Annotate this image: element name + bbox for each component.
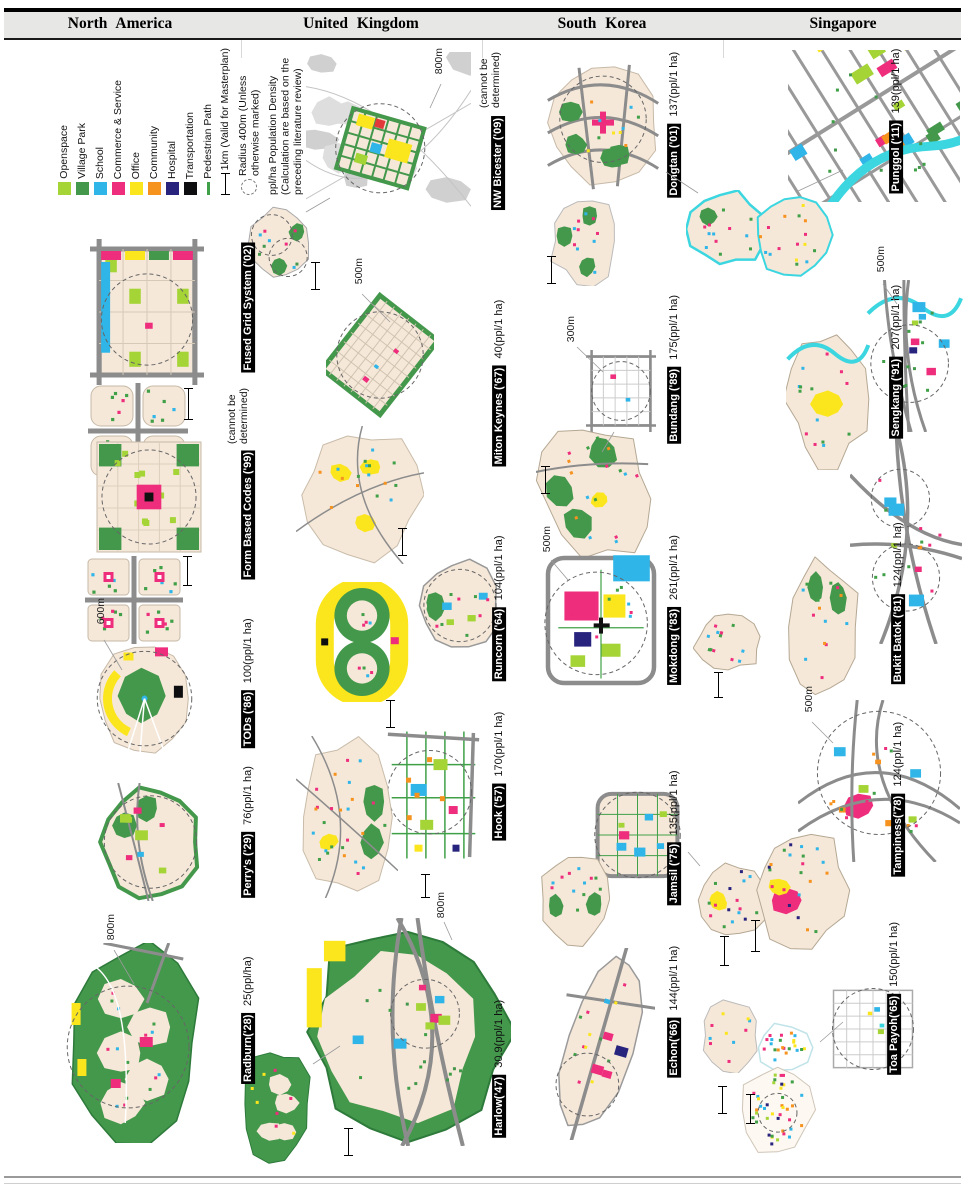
map-mokdong-small <box>693 610 763 674</box>
map-nw-bicester-small <box>246 203 314 283</box>
map-tods <box>92 632 197 760</box>
scale-label-mokdong: 500m <box>542 526 554 552</box>
legend-label: Pedestrian Path <box>202 104 214 179</box>
scalebar-1km <box>751 920 760 952</box>
map-tampiness-small <box>750 826 852 954</box>
entry-density: 175(ppl/1 ha) <box>668 295 680 360</box>
map-punggol-large <box>788 50 960 202</box>
entry-name: Hook ('57) <box>492 784 506 841</box>
map-punggol-small <box>750 190 834 280</box>
entry-name: Miton Keynes ('67) <box>492 366 506 467</box>
legend-label: Community <box>148 126 160 179</box>
legend-color-swatch <box>130 182 143 195</box>
entry-name: Bukit Batok ('81) <box>891 594 905 684</box>
entry-name: Tampiness('78) <box>891 794 905 877</box>
entry-label-tampiness: Tampiness('78)124(ppl/1 ha) <box>892 722 904 877</box>
legend-label: Office <box>130 152 142 179</box>
legend-item-office: Office <box>130 152 143 195</box>
entry-name: TODs ('86) <box>241 690 255 748</box>
entry-label-nw-bicester: NW Bicester ('09) <box>492 116 504 210</box>
entry-label-miton-keynes: Miton Keynes ('67)40(ppl/1 ha) <box>493 300 505 466</box>
header-united-kingdom: United Kingdom <box>303 15 419 33</box>
radius-circle-icon <box>241 179 257 195</box>
entry-label-harlow: Harlow('47)30.9(ppl/1 ha) <box>493 1000 505 1138</box>
legend-item-hospital: Hospital <box>166 141 179 195</box>
entry-name: Dongtan ('01) <box>667 124 681 198</box>
map-toa-payoh-small <box>738 1018 826 1166</box>
legend-item-commerce-service: Commerce & Service <box>112 80 125 195</box>
scale-label-tampiness: 500m <box>804 686 816 712</box>
scale-label-nw-bicester: 800m <box>434 48 446 74</box>
legend-label: Hospital <box>166 141 178 179</box>
scale-label-bundang: 300m <box>566 316 578 342</box>
map-nw-bicester-large <box>306 52 471 227</box>
legend-label: Village Park <box>76 123 88 179</box>
entry-name: Toa Payoh('65) <box>887 994 901 1075</box>
legend-item-village-park: Village Park <box>76 123 89 195</box>
legend-item-1km-valid-for-masterplan: 1km (Valid for Masterplan) <box>219 48 231 195</box>
entry-density: 124(ppl/1 ha) <box>892 722 904 787</box>
legend-color-swatch <box>184 182 197 195</box>
map-radburn <box>60 943 205 1143</box>
entry-label-punggol: Punggol ('11)139(ppl/1 ha) <box>890 49 902 193</box>
scale-label-radburn: 800m <box>106 914 118 940</box>
entry-name: Sengkang ('91) <box>889 357 903 439</box>
entry-density: 76(ppl/1 ha) <box>242 766 254 825</box>
scalebar-1km <box>183 556 192 586</box>
entry-density: 40(ppl/1 ha) <box>493 300 505 359</box>
entry-label-tods: TODs ('86)100(ppl/1 ha) <box>242 618 254 748</box>
entry-density: 144(ppl/1 ha) <box>668 946 680 1011</box>
scale-label-harlow: 800m <box>436 892 448 918</box>
legend-label: Openspace <box>58 125 70 179</box>
map-miton-keynes-large <box>326 286 434 424</box>
map-hook-large <box>386 726 481 864</box>
map-toa-payoh-large <box>826 983 920 1075</box>
map-dongtan-large <box>543 56 663 204</box>
entry-name: NW Bicester ('09) <box>491 116 505 210</box>
map-form-based-codes-large <box>93 438 205 556</box>
entry-label-echon: Echon('66)144(ppl/1 ha) <box>668 946 680 1078</box>
scale-label-sengkang: 500m <box>876 246 888 272</box>
map-hook-small <box>296 736 398 898</box>
entry-label-dongtan: Dongtan ('01)137(ppl/1 ha) <box>668 52 680 198</box>
scalebar-1km <box>344 1128 353 1156</box>
legend-color-swatch <box>94 182 107 195</box>
legend-color-swatch <box>58 182 71 195</box>
map-dongtan-mini <box>548 196 622 286</box>
legend: OpenspaceVillage ParkSchoolCommerce & Se… <box>58 44 304 195</box>
map-bukit-batok-small <box>786 553 860 701</box>
scalebar-icon <box>221 173 230 195</box>
legend-label: Transportation <box>184 112 196 179</box>
entry-label-hook: Hook ('57)170(ppl/1 ha) <box>493 712 505 841</box>
header-south-korea: South Korea <box>558 15 647 33</box>
map-fused-grid-large <box>90 237 204 387</box>
map-bundang-large <box>536 416 654 564</box>
scalebar-1km <box>746 1094 755 1124</box>
entry-label-radburn: Radburn('28)25(ppl/ha) <box>242 956 254 1084</box>
entry-name: Bundang ('89) <box>667 367 681 444</box>
figure-page: North America United Kingdom South Korea… <box>0 0 965 1197</box>
entry-density: 170(ppl/1 ha) <box>493 712 505 777</box>
entry-name: Punggol ('11) <box>889 121 903 194</box>
map-mokdong-large <box>540 548 662 693</box>
entry-name: Perry's ('29) <box>241 832 255 898</box>
header-north-america: North America <box>68 15 172 33</box>
entry-density: 135(ppl/1 ha) <box>668 770 680 835</box>
map-echon-large <box>543 948 655 1140</box>
map-sengkang-large <box>866 280 963 432</box>
legend-item-community: Community <box>148 126 161 195</box>
entry-density: 104(ppl/1 ha) <box>493 535 505 600</box>
entry-note-nw-bicester: (cannot be determined) <box>478 44 502 108</box>
entry-density: 25(ppl/ha) <box>242 956 254 1006</box>
scalebar-1km <box>386 700 395 728</box>
entry-name: Jamsil ('75) <box>667 842 681 905</box>
entry-name: Radburn('28) <box>241 1013 255 1084</box>
entry-label-runcorn: Runcorn ('64)104(ppl/1 ha) <box>493 535 505 681</box>
scalebar-1km <box>714 672 723 698</box>
scalebar-1km <box>718 1086 727 1114</box>
legend-color-swatch <box>148 182 161 195</box>
map-bukit-batok-large <box>850 436 962 644</box>
legend-label: Commerce & Service <box>112 80 124 179</box>
entry-name: Fused Grid System ('02) <box>241 243 255 373</box>
entry-label-mokdong: Mokdong ('83)261(ppl/1 ha) <box>668 535 680 685</box>
entry-density: 124(ppl/1 ha) <box>892 522 904 587</box>
scalebar-1km <box>421 874 430 898</box>
bottom-rule <box>4 1176 961 1178</box>
scalebar-1km <box>311 262 320 290</box>
entry-name: Mokdong ('83) <box>667 607 681 685</box>
entry-label-fused-grid: Fused Grid System ('02) <box>242 243 254 373</box>
map-harlow-large <box>296 918 511 1146</box>
entry-label-bukit-batok: Bukit Batok ('81)124(ppl/1 ha) <box>892 522 904 684</box>
scalebar-1km <box>720 936 729 966</box>
legend-label: 1km (Valid for Masterplan) <box>219 48 231 170</box>
legend-item-transportation: Transportation <box>184 112 197 195</box>
entry-density: 207(ppl/1 ha) <box>890 285 902 350</box>
entry-density: 139(ppl/1 ha) <box>890 49 902 114</box>
entry-label-sengkang: Sengkang ('91)207(ppl/1 ha) <box>890 285 902 439</box>
legend-item-radius-400m-unless-other: Radius 400m (Unless otherwise marked) <box>237 44 262 195</box>
legend-label: Radius 400m (Unless otherwise marked) <box>237 44 262 176</box>
entry-label-perrys: Perry's ('29)76(ppl/1 ha) <box>242 766 254 898</box>
legend-item-school: School <box>94 147 107 195</box>
entry-note-form-based-codes: (cannot be determined) <box>226 380 250 444</box>
entry-name: Runcorn ('64) <box>492 607 506 681</box>
entry-density: 100(ppl/1 ha) <box>242 618 254 683</box>
entry-density: 150(ppl/1 ha) <box>888 922 900 987</box>
scalebar-1km <box>547 256 556 284</box>
entry-label-toa-payoh: Toa Payoh('65)150(ppl/1 ha) <box>888 922 900 1075</box>
legend-item-ppl-ha-population-densit: ppl/ha Population Density (Calculation a… <box>267 45 304 195</box>
entry-density: 137(ppl/1 ha) <box>668 52 680 117</box>
pedestrian-path-icon <box>207 182 210 195</box>
scalebar-1km <box>541 466 550 494</box>
entry-name: Form Based Codes ('99) <box>241 450 255 579</box>
scalebar-1km <box>184 388 193 420</box>
legend-item-openspace: Openspace <box>58 125 71 195</box>
entry-label-form-based-codes: Form Based Codes ('99) <box>242 450 254 579</box>
column-divider <box>723 40 724 58</box>
legend-color-swatch <box>112 182 125 195</box>
entry-density: 261(ppl/1 ha) <box>668 535 680 600</box>
legend-label: School <box>94 147 106 179</box>
scale-label-tods: 600m <box>96 598 108 624</box>
entry-density: 30.9(ppl/1 ha) <box>493 1000 505 1068</box>
bottom-rule-thin <box>4 1183 961 1184</box>
legend-color-swatch <box>166 182 179 195</box>
header-singapore: Singapore <box>810 15 877 33</box>
scalebar-1km <box>398 528 407 556</box>
entry-name: Echon('66) <box>667 1018 681 1078</box>
entry-label-bundang: Bundang ('89)175(ppl/1 ha) <box>668 295 680 444</box>
scale-label-miton-keynes: 500m <box>354 258 366 284</box>
entry-name: Harlow('47) <box>492 1075 506 1138</box>
map-jamsil-mini <box>540 850 610 948</box>
entry-label-jamsil: Jamsil ('75)135(ppl/1 ha) <box>668 770 680 905</box>
legend-label: ppl/ha Population Density (Calculation a… <box>267 45 304 195</box>
legend-color-swatch <box>76 182 89 195</box>
map-runcorn-small <box>417 558 503 653</box>
legend-item-pedestrian-path: Pedestrian Path <box>202 104 214 195</box>
map-perrys <box>98 783 203 901</box>
map-runcorn-stadium <box>302 582 422 702</box>
